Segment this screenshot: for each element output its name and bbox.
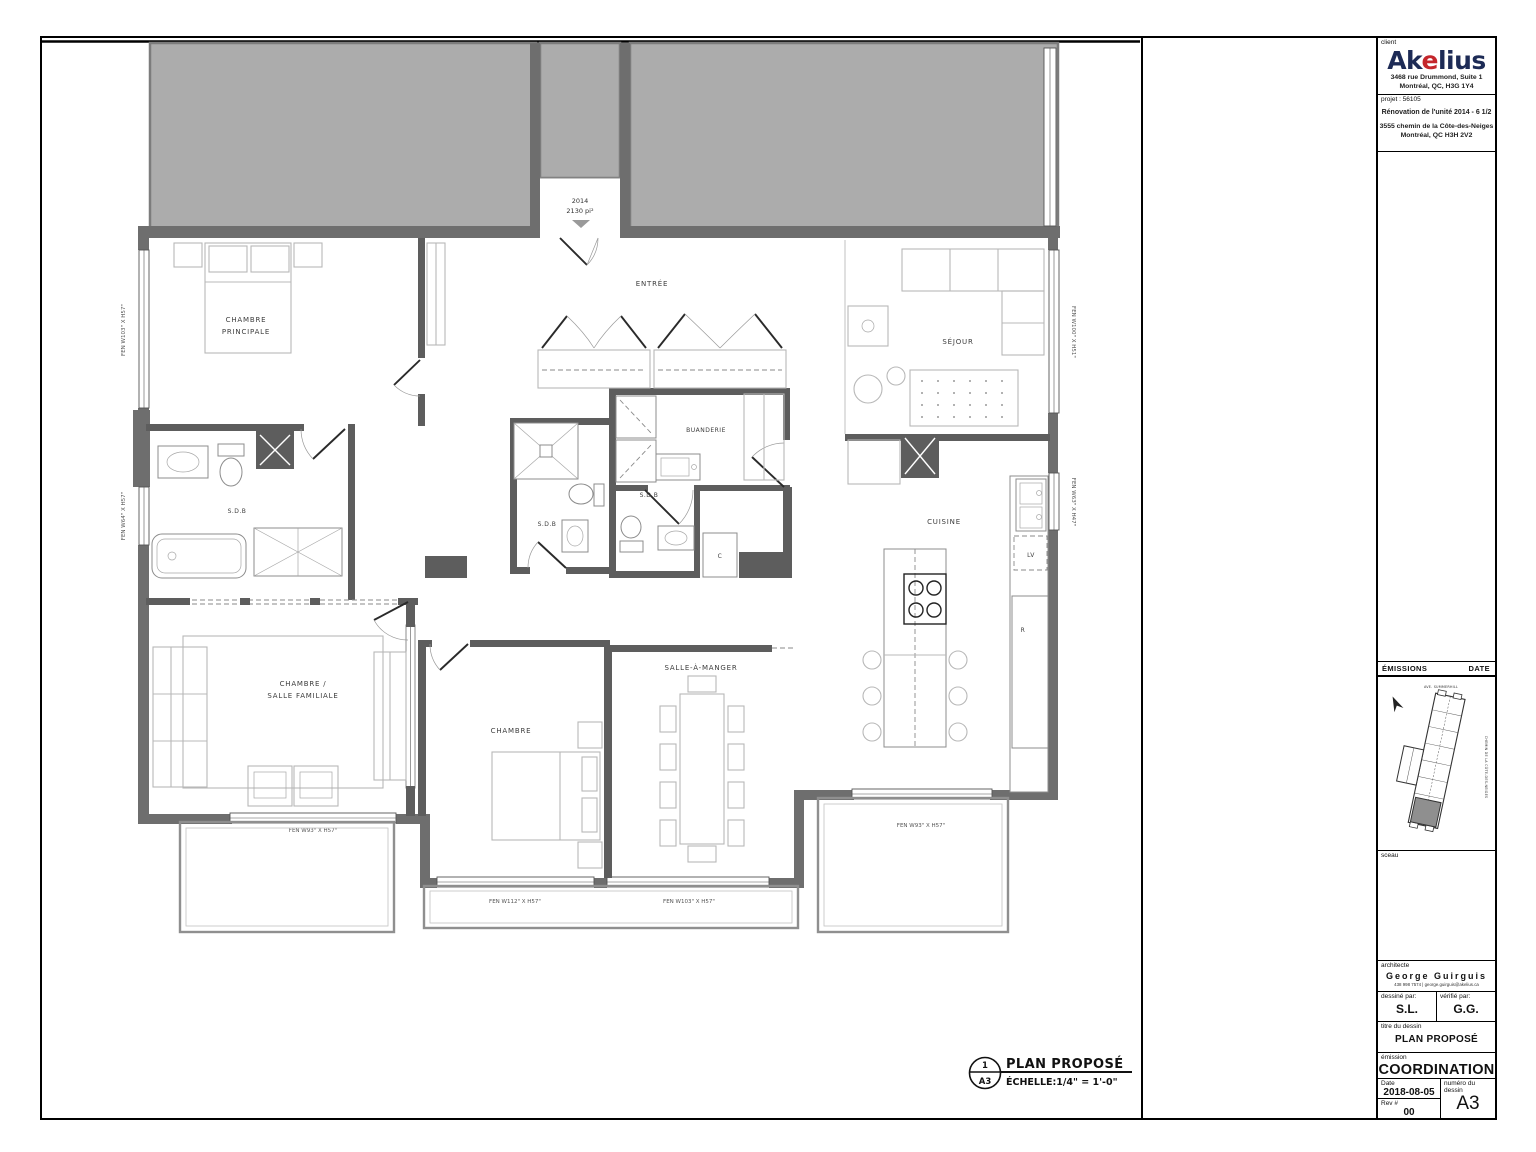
date-number-row: Date 2018-08-05 Rev # 00 numéro du dessi… bbox=[1378, 1079, 1495, 1118]
architect-contact: 438 998 7574 | george.guirguis@akelius.c… bbox=[1378, 982, 1495, 987]
emissions-header: ÉMISSIONS DATE bbox=[1378, 662, 1495, 677]
title-block-spacer bbox=[1378, 152, 1495, 662]
room-label: SALLE-À-MANGER bbox=[664, 663, 737, 672]
window-right-top: FEN W100" X H51" bbox=[1049, 250, 1076, 413]
client-section: client Akelius 3468 rue Drummond, Suite … bbox=[1378, 38, 1495, 95]
closet-c: C bbox=[703, 533, 737, 577]
floor-plan: 2014 2130 pi² bbox=[0, 0, 1536, 1152]
room-cuisine: LV R CUISINE bbox=[848, 440, 1048, 792]
window-label: FEN W100" X H51" bbox=[1070, 306, 1076, 358]
kitchen-island bbox=[884, 549, 946, 747]
room-sdb-master: S.D.B bbox=[152, 444, 342, 578]
drawing-title-label: titre du dessin bbox=[1378, 1022, 1495, 1031]
emissions-label: ÉMISSIONS bbox=[1382, 664, 1427, 673]
window-label: FEN W112" X H57" bbox=[489, 899, 541, 905]
drawn-by-cell: dessiné par: S.L. bbox=[1378, 992, 1436, 1021]
client-address-2: Montréal, QC, H3G 1Y4 bbox=[1378, 82, 1495, 91]
keyplan-building bbox=[1387, 685, 1465, 832]
room-chambre-principale: CHAMBRE PRINCIPALE bbox=[174, 243, 445, 353]
room-entree: ENTRÉE bbox=[538, 279, 786, 388]
keyplan-unit-highlight bbox=[1410, 797, 1441, 827]
room-label: S.D.B bbox=[228, 508, 247, 515]
room-label: CHAMBRE bbox=[491, 727, 532, 735]
caption-title: PLAN PROPOSÉ bbox=[1006, 1056, 1124, 1072]
room-label: SÉJOUR bbox=[942, 337, 973, 346]
room-buanderie: BUANDERIE bbox=[616, 394, 784, 482]
master-bath-door bbox=[301, 429, 345, 459]
title-block: client Akelius 3468 rue Drummond, Suite … bbox=[1376, 36, 1497, 1120]
room-sdb-shower: S.D.B bbox=[514, 423, 604, 552]
project-address-1: 3555 chemin de la Côte-des-Neiges bbox=[1378, 122, 1495, 131]
room-label: PRINCIPALE bbox=[222, 328, 270, 336]
emission-value: COORDINATION bbox=[1378, 1062, 1495, 1078]
window-bottom-left: FEN W93" X H57" bbox=[230, 813, 396, 834]
room-label: ENTRÉE bbox=[636, 279, 668, 288]
sceau-label: sceau bbox=[1378, 851, 1495, 860]
room-sejour: SÉJOUR bbox=[845, 240, 1044, 434]
client-address-1: 3468 rue Drummond, Suite 1 bbox=[1378, 73, 1495, 82]
corridor-area: 2014 2130 pi² bbox=[42, 42, 1140, 239]
window-right-mid: FEN W63" X H47" bbox=[1049, 473, 1076, 530]
architect-name: George Guirguis bbox=[1378, 971, 1495, 981]
drawn-by-label: dessiné par: bbox=[1378, 992, 1436, 1001]
wardrobe bbox=[254, 528, 342, 576]
keyplan-section: AVE. SUMMERHILL CHEMIN DE LA CÔTE-DES-NE… bbox=[1378, 677, 1495, 851]
drawing-title-value: PLAN PROPOSÉ bbox=[1378, 1034, 1495, 1045]
drawn-by-value: S.L. bbox=[1378, 1002, 1436, 1016]
keyplan-street-top: AVE. SUMMERHILL bbox=[1423, 685, 1457, 689]
window-label: FEN W103" X H57" bbox=[121, 304, 127, 356]
logo-part: Ak bbox=[1387, 46, 1421, 75]
shower-room-door bbox=[528, 542, 566, 568]
rug bbox=[910, 370, 1018, 426]
closet-french-doors bbox=[542, 314, 782, 348]
shower bbox=[514, 423, 578, 479]
window-label: FEN W64" X H57" bbox=[121, 492, 127, 540]
closet-label: C bbox=[718, 553, 723, 560]
sceau-section: sceau bbox=[1378, 851, 1495, 961]
date-cell: Date 2018-08-05 bbox=[1378, 1079, 1440, 1099]
date-column-label: DATE bbox=[1469, 664, 1490, 673]
sheet-number-label: numéro du dessin bbox=[1441, 1079, 1495, 1094]
architect-section: architecte George Guirguis 438 998 7574 … bbox=[1378, 961, 1495, 992]
keyplan: AVE. SUMMERHILL CHEMIN DE LA CÔTE-DES-NE… bbox=[1379, 679, 1495, 849]
window-left-bottom: FEN W64" X H57" bbox=[121, 487, 149, 545]
bedroom-door bbox=[430, 644, 468, 670]
project-label: projet : 56105 bbox=[1378, 95, 1495, 104]
family-room-door bbox=[374, 602, 408, 640]
window-left-top: FEN W103" X H57" bbox=[121, 250, 149, 408]
room-chambre: CHAMBRE bbox=[491, 722, 602, 868]
window-label: FEN W93" X H57" bbox=[289, 828, 337, 834]
akelius-logo: Akelius bbox=[1378, 48, 1495, 73]
checked-by-label: vérifié par: bbox=[1437, 992, 1495, 1001]
room-label: SALLE FAMILIALE bbox=[267, 692, 338, 700]
window-bottom-right: FEN W93" X H57" bbox=[852, 789, 992, 829]
dishwasher-label: LV bbox=[1027, 552, 1035, 559]
entry-door bbox=[560, 238, 598, 265]
project-address-2: Montréal, QC H3H 2V2 bbox=[1378, 131, 1495, 140]
room-label: CHAMBRE / bbox=[280, 680, 327, 688]
unit-number: 2014 bbox=[572, 197, 589, 205]
emission-section: émission COORDINATION bbox=[1378, 1053, 1495, 1079]
shaft-block-kitchen bbox=[901, 434, 939, 478]
project-section: projet : 56105 Rénovation de l'unité 201… bbox=[1378, 95, 1495, 152]
room-label: BUANDERIE bbox=[686, 427, 726, 434]
keyplan-street-right: CHEMIN DE LA CÔTE-DES-NEIGES bbox=[1484, 735, 1489, 798]
shaft-block-bath bbox=[256, 431, 294, 469]
master-bedroom-door bbox=[394, 360, 420, 396]
drawing-caption: 1 A3 PLAN PROPOSÉ ÉCHELLE:1/4" = 1'-0" bbox=[969, 1056, 1132, 1089]
room-salle-familiale: CHAMBRE / SALLE FAMILIALE bbox=[153, 636, 406, 806]
window-label: FEN W103" X H57" bbox=[663, 899, 715, 905]
caption-sheet-ref: A3 bbox=[979, 1077, 992, 1087]
logo-accent: e bbox=[1422, 46, 1438, 75]
fridge-label: R bbox=[1021, 627, 1026, 634]
project-title: Rénovation de l'unité 2014 - 6 1/2 bbox=[1378, 109, 1495, 116]
drawn-checked-row: dessiné par: S.L. vérifié par: G.G. bbox=[1378, 992, 1495, 1022]
kitchen-counter: LV R bbox=[1010, 476, 1048, 792]
rev-value: 00 bbox=[1378, 1108, 1440, 1118]
north-arrow-icon bbox=[1388, 694, 1403, 712]
logo-part: lius bbox=[1438, 46, 1486, 75]
room-label: S.D.B bbox=[640, 492, 659, 499]
checked-by-value: G.G. bbox=[1437, 1002, 1495, 1016]
unit-area: 2130 pi² bbox=[566, 207, 594, 215]
date-value: 2018-08-05 bbox=[1378, 1088, 1440, 1098]
room-label: S.D.B bbox=[538, 521, 557, 528]
caption-detail-number: 1 bbox=[982, 1061, 988, 1071]
room-label: CHAMBRE bbox=[226, 316, 267, 324]
drawing-sheet: 2014 2130 pi² bbox=[0, 0, 1536, 1152]
rev-cell: Rev # 00 bbox=[1378, 1099, 1440, 1118]
checked-by-cell: vérifié par: G.G. bbox=[1436, 992, 1495, 1021]
window-label: FEN W63" X H47" bbox=[1070, 478, 1076, 526]
caption-scale: ÉCHELLE:1/4" = 1'-0" bbox=[1006, 1076, 1118, 1088]
drawing-title-section: titre du dessin PLAN PROPOSÉ bbox=[1378, 1022, 1495, 1053]
room-label: CUISINE bbox=[927, 518, 961, 526]
room-salle-a-manger: SALLE-À-MANGER bbox=[660, 663, 744, 862]
sheet-number-value: A3 bbox=[1441, 1094, 1495, 1115]
sheet-number-cell: numéro du dessin A3 bbox=[1440, 1079, 1495, 1118]
date-rev-column: Date 2018-08-05 Rev # 00 bbox=[1378, 1079, 1440, 1118]
emission-label: émission bbox=[1378, 1053, 1495, 1062]
architect-label: architecte bbox=[1378, 961, 1495, 970]
window-label: FEN W93" X H57" bbox=[897, 823, 945, 829]
